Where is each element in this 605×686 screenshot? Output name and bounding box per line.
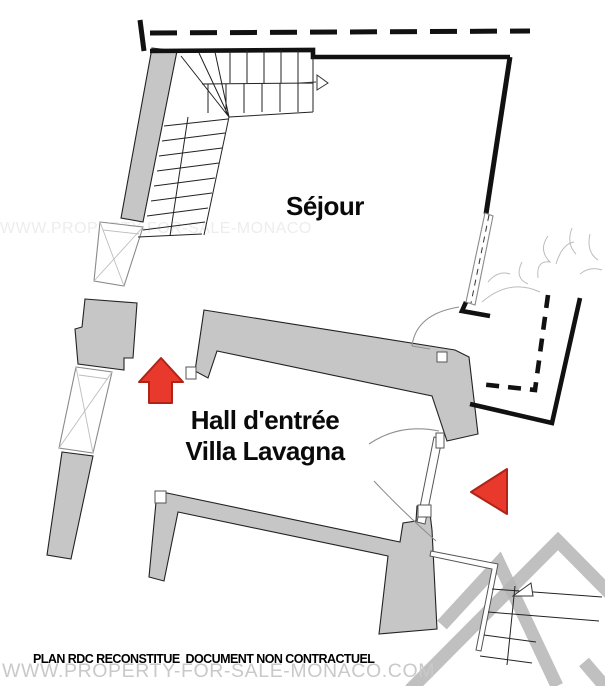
property-line-cap — [140, 20, 144, 51]
stair-direction-arrow-icon — [317, 75, 328, 90]
west-wall-block — [75, 299, 137, 370]
east-window — [466, 213, 493, 305]
sejour-north-wall — [150, 50, 510, 57]
floor-plan-drawing — [0, 0, 605, 686]
plant-sketch — [482, 228, 602, 302]
terrace-wall-dashed — [479, 295, 548, 390]
floor-plan: WWW.PROPERTY-FOR-SALE-MONACO — [0, 0, 605, 686]
stair-west-wall — [121, 48, 177, 222]
plan-caption: PLAN RDC RECONSTITUE DOCUMENT NON CONTRA… — [33, 652, 374, 666]
hall-label-line2: Villa Lavagna — [168, 436, 362, 467]
west-wall-lower — [47, 452, 93, 559]
winder-treads — [181, 52, 229, 117]
property-line-dashed — [150, 31, 530, 33]
sejour-east-wall — [486, 57, 510, 214]
entrance-arrow-up-icon — [139, 358, 183, 403]
sejour-door-arc — [412, 307, 459, 346]
hall-label-line1: Hall d'entrée — [168, 405, 362, 436]
entrance-arrow-left-icon — [471, 469, 507, 514]
stair-direction-line — [300, 82, 316, 83]
room-label-sejour: Séjour — [286, 191, 364, 222]
room-label-hall: Hall d'entrée Villa Lavagna — [168, 405, 362, 467]
sejour-east-step — [462, 302, 490, 316]
hall-south-wall — [149, 493, 437, 634]
hall-door-arc-upper — [369, 429, 439, 444]
